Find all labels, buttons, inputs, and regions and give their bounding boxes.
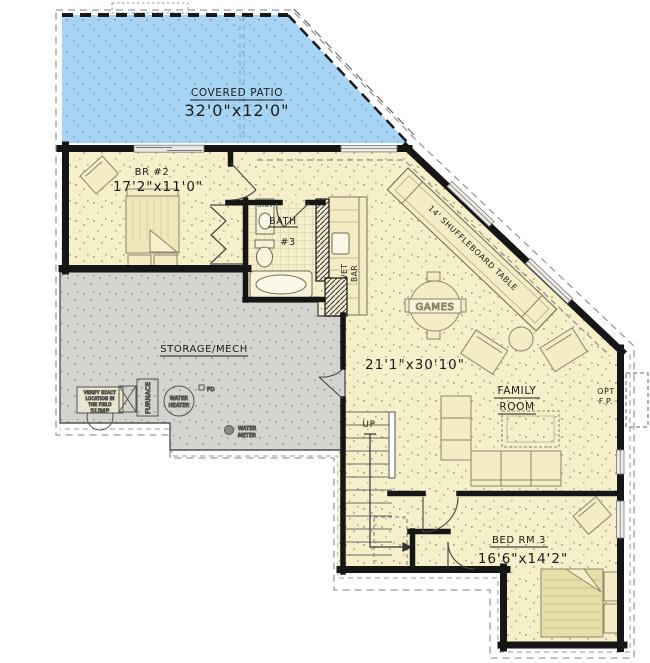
family-label-2: ROOM	[499, 401, 534, 413]
upper-deck-stoop-outline	[112, 3, 188, 13]
water-meter-l2: METER	[238, 433, 256, 439]
sump-note-1: VERIFY EXACT	[84, 390, 116, 395]
bed3-mattress	[541, 569, 603, 637]
opt-fp-line2: F.P.	[599, 397, 613, 406]
opt-fp-line1: OPT	[597, 387, 615, 396]
sump-label: SUMP	[90, 407, 109, 415]
family-label-1: FAMILY	[498, 385, 537, 397]
stair-rail	[389, 412, 395, 478]
furnace-label: FURNACE	[144, 382, 152, 414]
toilet-bowl	[257, 247, 273, 267]
water-meter-l1: WATER	[238, 426, 257, 432]
chase-wall-upper	[316, 199, 329, 281]
tub-basin	[256, 275, 306, 294]
games-label: GAMES	[416, 302, 455, 313]
floor-drain-label: FD	[207, 387, 215, 393]
sectional-sofa	[471, 451, 561, 486]
family-dimensions: 21'1"x30'10"	[365, 357, 465, 373]
bath-label: BATH	[269, 216, 297, 227]
patio-sliding-door	[134, 145, 204, 152]
stairs-up-label: UP	[362, 420, 375, 430]
sump-note-2: LOCATION IN	[85, 396, 114, 401]
opt-fp-dashed-box	[626, 373, 648, 427]
patio-label: COVERED PATIO	[191, 87, 283, 99]
br2-label: BR #2	[135, 167, 170, 178]
water-heater-l1: WATER	[170, 396, 189, 402]
drws-label: DRWS	[258, 203, 273, 209]
covered-patio: COVERED PATIO 32'0"x12'0"	[62, 9, 416, 143]
bed3-pillow-1	[604, 572, 618, 601]
bed3-label: BED RM 3	[492, 535, 546, 546]
patio-dimensions: 32'0"x12'0"	[184, 101, 289, 120]
storage-label: STORAGE/MECH	[160, 344, 248, 355]
water-meter-symbol	[225, 426, 234, 435]
chase-wall-lower	[325, 278, 347, 316]
br2-dimensions: 17'2"x11'0"	[113, 179, 203, 195]
basement-floor-plan: COVERED PATIO 32'0"x12'0"	[0, 0, 650, 663]
water-heater-l2: HEATER	[169, 403, 190, 409]
floor-plan-page: COVERED PATIO 32'0"x12'0"	[0, 0, 650, 663]
bed3-pillow-2	[604, 604, 618, 633]
bed3-dimensions: 16'6"x14'2"	[478, 551, 568, 567]
patio-slab	[62, 15, 408, 143]
sectional-chaise	[441, 396, 471, 460]
bath-number: #3	[280, 237, 295, 248]
round-side-table	[509, 327, 533, 351]
wet-bar-word2: BAR	[350, 265, 359, 282]
stool-n	[427, 272, 440, 281]
bar-sink	[332, 233, 349, 254]
